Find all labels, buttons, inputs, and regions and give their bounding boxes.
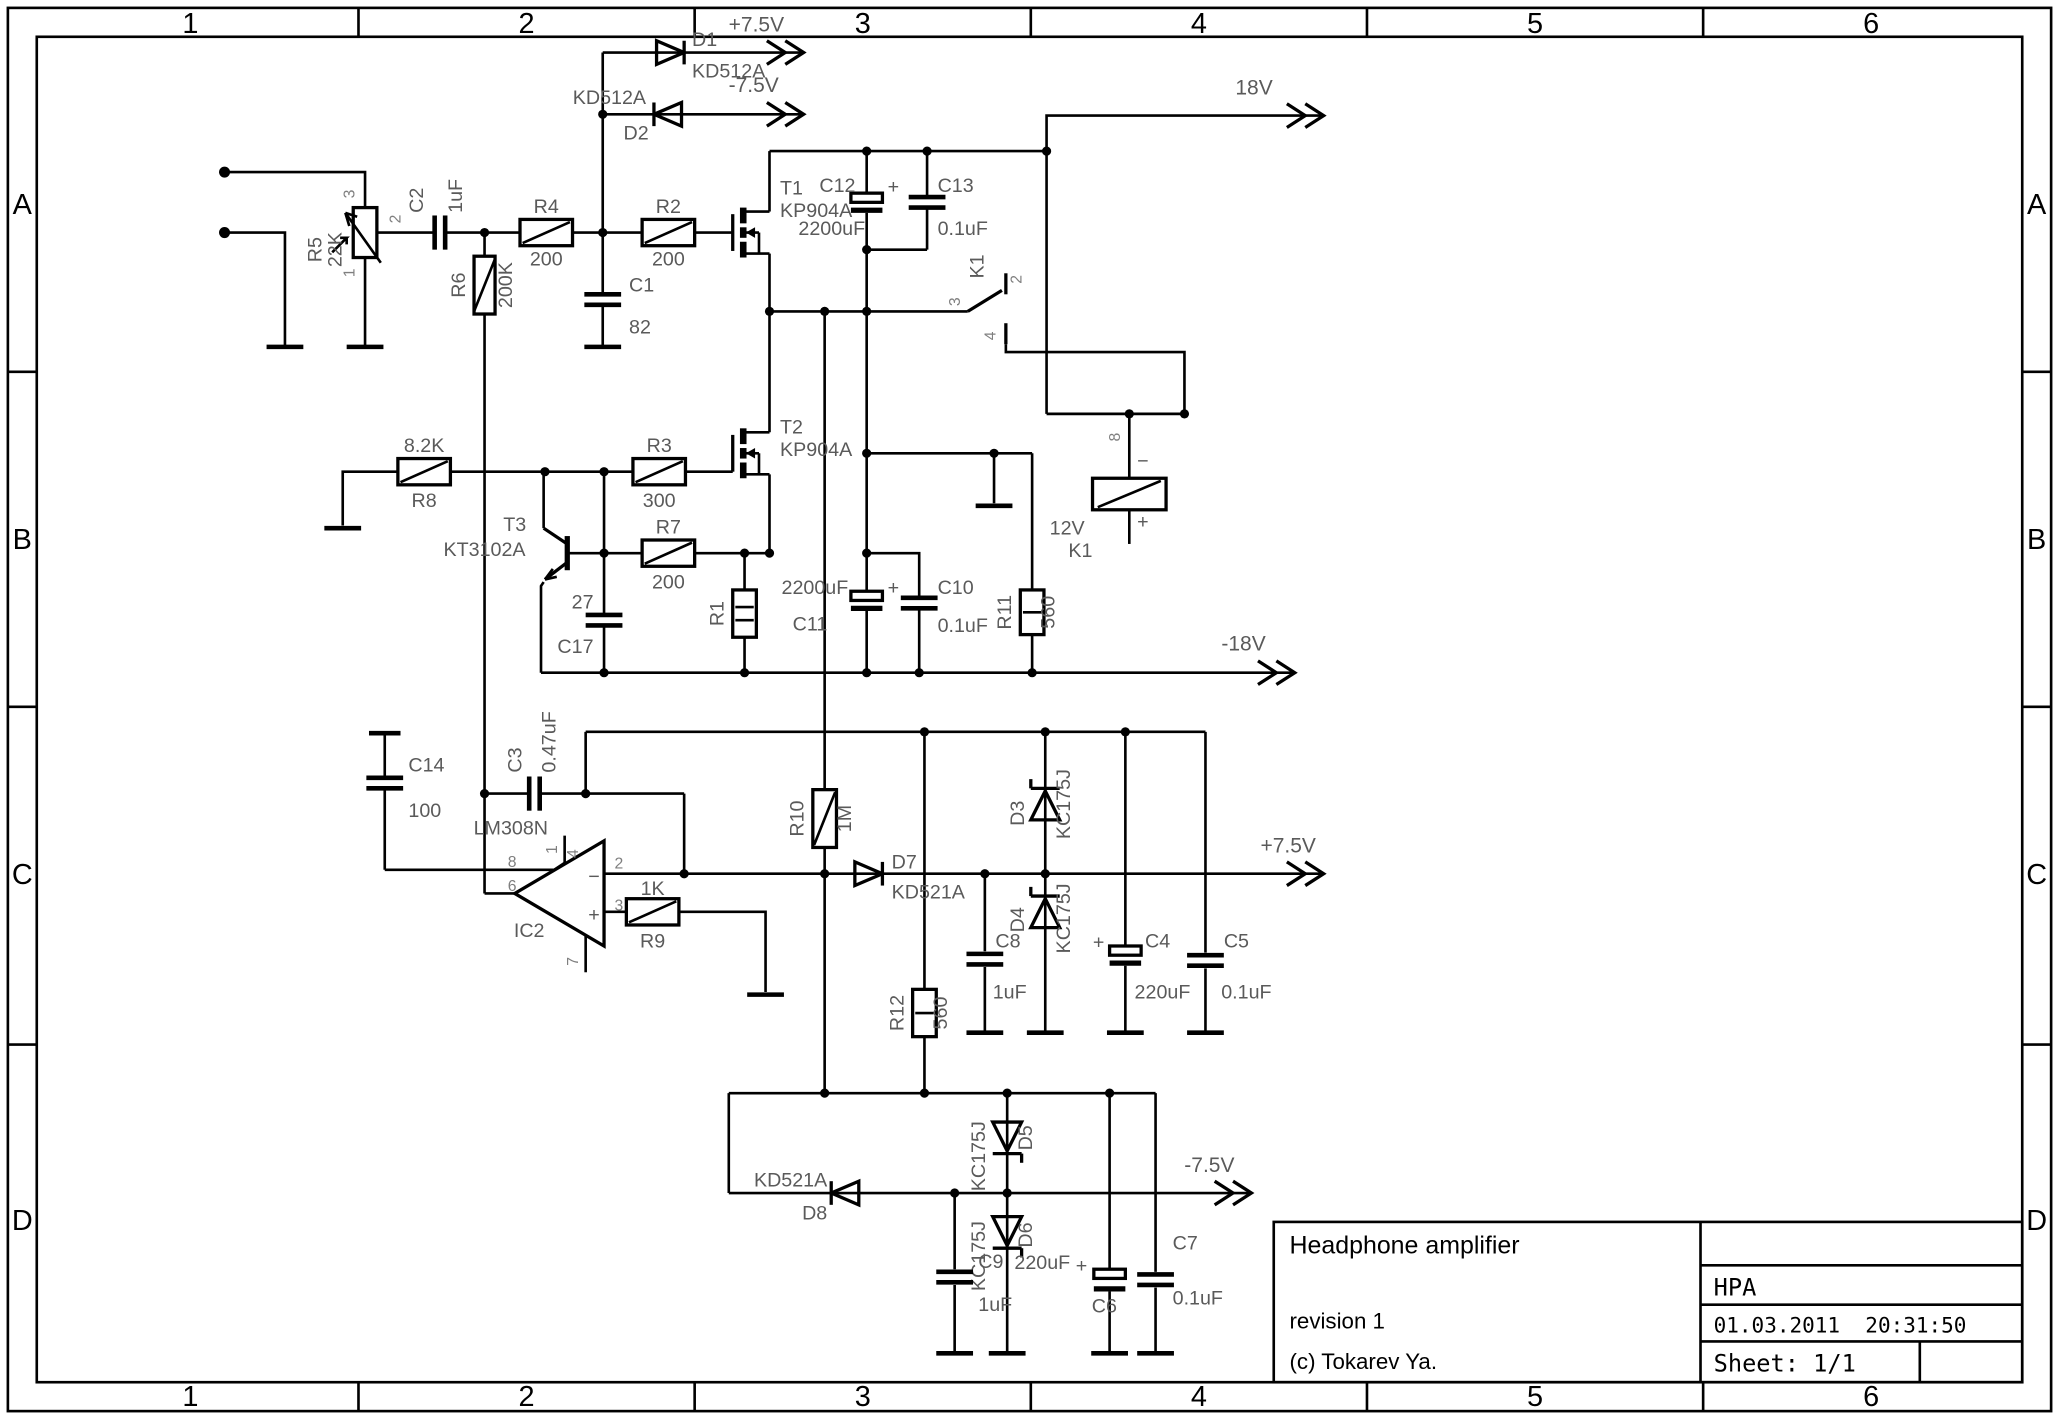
label-r6-ref: R6	[448, 272, 470, 297]
label-c17-val: 27	[572, 591, 594, 613]
label-d2-ref: D2	[624, 122, 649, 144]
label-r9-val: 1K	[641, 878, 665, 900]
capacitor-C7: C7 0.1uF	[1137, 1233, 1223, 1310]
label-ic2-minus: −	[588, 866, 599, 888]
zener-D5: D5 KC175J	[968, 1121, 1037, 1191]
title-block-copyright: (c) Tokarev Ya.	[1290, 1349, 1438, 1374]
label-r8-ref: R8	[412, 490, 437, 512]
label-r2-val: 200	[652, 248, 685, 270]
label-r4-val: 200	[530, 248, 563, 270]
label-k1-minus: −	[1137, 451, 1148, 473]
label-r10-val: 1M	[834, 805, 856, 832]
label-r2-ref: R2	[656, 196, 681, 218]
label-d6-ref: D6	[1015, 1222, 1037, 1247]
label-c1-val: 82	[629, 317, 651, 339]
label-c12-val: 2200uF	[798, 218, 865, 240]
capacitor-C1: C1 82	[584, 275, 654, 339]
label-d1-val: KD512A	[692, 61, 766, 83]
label-r10-ref: R10	[787, 800, 809, 836]
label-r9-ref: R9	[640, 930, 665, 952]
label-k1-pin4: 4	[982, 331, 999, 340]
title-block-datetime: 01.03.2011 20:31:50	[1714, 1312, 1967, 1337]
title-block-sheet: Sheet: 1/1	[1714, 1350, 1856, 1378]
label-c17-ref: C17	[557, 636, 593, 658]
resistor-R2: R2 200	[642, 196, 695, 271]
transistor-T3: T3 KT3102A	[444, 472, 568, 673]
label-c2-val: 1uF	[445, 179, 467, 213]
label-ic2-pin1: 1	[544, 845, 561, 854]
label-t1-ref: T1	[780, 177, 803, 199]
label-c6-ref: C6	[1092, 1296, 1117, 1318]
label-c10-ref: C10	[938, 577, 974, 599]
label-r7-ref: R7	[656, 516, 681, 538]
label-k1-plus: +	[1137, 511, 1148, 533]
label-c3-val: 0.47uF	[538, 711, 560, 772]
frame-row-b-left: B	[13, 524, 32, 556]
label-c14-ref: C14	[408, 754, 444, 776]
frame-col-4-top: 4	[1191, 8, 1207, 40]
schematic-page: 1 2 3 4 5 6 1 2 3 4 5 6 A B C D A B C D	[0, 0, 2059, 1419]
resistor-R12: R12 560	[886, 989, 951, 1036]
label-r7-val: 200	[652, 572, 685, 594]
label-r5-pin2: 2	[388, 215, 405, 224]
label-c2-ref: C2	[406, 188, 428, 213]
label-r6-val: 200K	[495, 262, 517, 308]
label-d5-val: KC175J	[968, 1121, 990, 1191]
label-c13-val: 0.1uF	[938, 218, 988, 240]
label-c10-val: 0.1uF	[938, 615, 988, 637]
relay-coil-K1: 8 − + 12V K1	[1050, 414, 1166, 562]
label-c6-val: 220uF	[1014, 1252, 1070, 1274]
label-d4-val: KC175J	[1053, 883, 1075, 953]
capacitor-C5: C5 0.1uF	[1187, 930, 1271, 1003]
label-c12-ref: C12	[819, 175, 855, 197]
title-block-title: Headphone amplifier	[1290, 1231, 1520, 1259]
label-d3-ref: D3	[1007, 801, 1029, 826]
frame-row-d-right: D	[2026, 1205, 2047, 1237]
frame-col-3-bottom: 3	[855, 1381, 871, 1413]
label-ic2-plus: +	[588, 904, 599, 926]
resistor-R1: R1	[707, 590, 757, 637]
ground-symbols	[267, 347, 1224, 1353]
label-r5-pin1: 1	[342, 268, 359, 277]
frame-col-6-bottom: 6	[1863, 1381, 1879, 1413]
label-r8-val: 8.2K	[404, 435, 444, 457]
capacitor-C4: + C4 220uF	[1093, 930, 1191, 1003]
label-d2-val: KD512A	[573, 87, 647, 109]
frame-col-5-top: 5	[1527, 8, 1543, 40]
power-rail-arrows: +7.5V -7.5V 18V -18V +7.5V -7.5V	[729, 14, 1324, 1205]
capacitor-C3: C3 0.47uF	[504, 711, 560, 810]
relay-contact-K1: 3 K1 2 4	[947, 254, 1026, 344]
label-c6-plus: +	[1076, 1255, 1087, 1277]
diode-D7: D7 KD521A	[855, 851, 966, 903]
wires	[225, 53, 1324, 1354]
capacitor-C10: C10 0.1uF	[901, 577, 988, 637]
label-d5-ref: D5	[1015, 1125, 1037, 1150]
label-c13-ref: C13	[938, 175, 974, 197]
label-c4-ref: C4	[1145, 930, 1170, 952]
label-c7-ref: C7	[1173, 1233, 1198, 1255]
rail-label-plus7v5-top: +7.5V	[729, 14, 784, 37]
label-k1-pin2: 2	[1009, 275, 1026, 284]
frame-col-4-bottom: 4	[1191, 1381, 1207, 1413]
diode-D8: KD521A D8	[754, 1169, 859, 1224]
label-c8-ref: C8	[995, 930, 1020, 952]
frame-col-5-bottom: 5	[1527, 1381, 1543, 1413]
frame-row-a-left: A	[13, 189, 33, 221]
label-d7-ref: D7	[892, 851, 917, 873]
label-d8-ref: D8	[802, 1202, 827, 1224]
label-t3-val: KT3102A	[444, 539, 527, 561]
label-d1-ref: D1	[692, 29, 717, 51]
label-c4-plus: +	[1093, 932, 1104, 954]
label-c9-ref: C9	[978, 1251, 1003, 1273]
capacitor-C17: 27 C17	[557, 591, 622, 658]
label-c9-val: 1uF	[978, 1294, 1012, 1316]
label-r5-pin3: 3	[342, 189, 359, 198]
label-ic2-pin6: 6	[508, 878, 517, 895]
frame-row-d-left: D	[12, 1205, 33, 1237]
label-k1-pin8: 8	[1107, 432, 1124, 441]
rail-label-18v: 18V	[1235, 77, 1272, 100]
label-c4-val: 220uF	[1135, 982, 1191, 1004]
label-c11-plus: +	[888, 577, 899, 599]
resistor-R6: R6 200K	[448, 256, 517, 314]
label-ic2-pin2: 2	[615, 855, 624, 872]
title-block-revision: revision 1	[1290, 1308, 1385, 1333]
frame-row-c-left: C	[12, 859, 33, 891]
label-ic2-pin8: 8	[508, 854, 517, 871]
label-r4-ref: R4	[534, 196, 559, 218]
label-r3-val: 300	[643, 490, 676, 512]
label-c11-ref: C11	[793, 614, 828, 636]
frame-col-1-top: 1	[182, 8, 198, 40]
frame-col-2-bottom: 2	[519, 1381, 535, 1413]
frame-col-1-bottom: 1	[182, 1381, 198, 1413]
frame-row-a-right: A	[2027, 189, 2047, 221]
resistor-R3: R3 300	[633, 435, 686, 512]
drawing-frame: 1 2 3 4 5 6 1 2 3 4 5 6 A B C D A B C D	[8, 8, 2051, 1413]
label-c11-val: 2200uF	[782, 577, 849, 599]
label-t2-ref: T2	[780, 417, 803, 439]
label-ic2-pin7: 7	[565, 957, 582, 966]
label-ic2-pin3: 3	[615, 898, 624, 915]
label-r5-val: 22K	[324, 232, 346, 267]
mosfet-T2: T2 KP904A	[733, 311, 853, 553]
label-ic2-pin4: 4	[565, 849, 582, 858]
label-r3-ref: R3	[647, 435, 672, 457]
capacitor-C14: C14 100	[366, 733, 444, 822]
capacitor-C13: C13 0.1uF	[909, 175, 988, 240]
label-c1-ref: C1	[629, 275, 654, 297]
frame-col-2-top: 2	[519, 8, 535, 40]
label-c5-val: 0.1uF	[1221, 982, 1271, 1004]
label-d3-val: KC175J	[1053, 769, 1075, 839]
label-c7-val: 0.1uF	[1173, 1288, 1223, 1310]
label-k1-val: 12V	[1050, 518, 1086, 540]
label-k1-pin3: 3	[947, 297, 964, 306]
resistor-R9: 1K R9	[626, 878, 679, 953]
label-ic2-ref: IC2	[514, 920, 545, 942]
frame-col-3-top: 3	[855, 8, 871, 40]
rail-label-minus7v5-bottom: -7.5V	[1184, 1154, 1234, 1177]
frame-col-6-top: 6	[1863, 8, 1879, 40]
capacitor-C2: C2 1uF	[406, 179, 467, 250]
resistor-R8: 8.2K R8	[398, 435, 451, 512]
label-k1-ref: K1	[1068, 540, 1092, 562]
frame-row-b-right: B	[2027, 524, 2046, 556]
label-r12-ref: R12	[886, 995, 908, 1031]
label-r11-ref: R11	[994, 595, 1016, 630]
schematic-canvas: 1 2 3 4 5 6 1 2 3 4 5 6 A B C D A B C D	[0, 0, 2059, 1419]
label-d4-ref: D4	[1007, 907, 1029, 932]
title-block: Headphone amplifier revision 1 (c) Tokar…	[1274, 1222, 2022, 1382]
title-block-code: HPA	[1714, 1273, 1757, 1301]
label-r1-ref: R1	[707, 601, 729, 626]
label-r11-val: 560	[1037, 596, 1059, 629]
label-t3-ref: T3	[503, 514, 526, 536]
label-r5-ref: R5	[305, 237, 327, 262]
opamp-IC2: LM308N IC2 8 6 1 4 7 2 3 − +	[474, 817, 624, 972]
rail-label-plus7v5-mid: +7.5V	[1260, 835, 1315, 858]
rail-label-minus18v: -18V	[1221, 632, 1265, 655]
resistor-R4: R4 200	[520, 196, 573, 271]
resistor-R10: R10 1M	[787, 790, 856, 848]
label-c8-val: 1uF	[993, 982, 1027, 1004]
capacitor-C11: 2200uF + C11	[782, 577, 900, 636]
label-c3-ref: C3	[504, 747, 526, 772]
frame-row-c-right: C	[2026, 859, 2047, 891]
resistor-R11: R11 560	[994, 590, 1059, 635]
label-ic2-val: LM308N	[474, 817, 548, 839]
label-c14-val: 100	[408, 800, 441, 822]
capacitor-C8: C8 1uF	[966, 930, 1026, 1003]
zener-D3: D3 KC175J	[1007, 769, 1075, 839]
label-r12-val: 560	[930, 997, 952, 1030]
label-t2-val: KP904A	[780, 439, 853, 461]
label-d8-val: KD521A	[754, 1169, 828, 1191]
label-c5-ref: C5	[1224, 930, 1249, 952]
label-k1sw-ref: K1	[967, 254, 989, 278]
resistor-R7: R7 200	[642, 516, 695, 593]
label-c12-plus: +	[888, 176, 899, 198]
label-d7-val: KD521A	[892, 882, 966, 904]
